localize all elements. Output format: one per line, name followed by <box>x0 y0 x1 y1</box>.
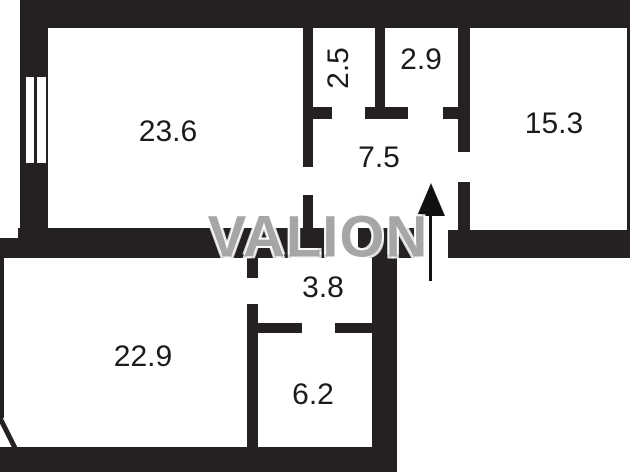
room-area-label-7-5: 7.5 <box>358 143 400 173</box>
wall-closet-bath-divider <box>375 28 385 119</box>
wall-closet-bottom-stub <box>313 107 332 119</box>
wall-room4-bottom <box>448 230 630 258</box>
wall-divider-foot <box>365 107 408 119</box>
window-pane-right <box>37 77 46 163</box>
wall-room4-left-upper <box>458 28 470 152</box>
room-area-label-23-6: 23.6 <box>139 117 197 147</box>
room-area-label-22-9: 22.9 <box>114 342 172 372</box>
room-area-label-3-8: 3.8 <box>302 273 344 303</box>
wall-chamfer-diagonal <box>0 414 22 452</box>
watermark-text: VALION <box>208 204 429 271</box>
wall-bath-bottom-stub <box>443 107 458 119</box>
wall-left-lower-sliver <box>0 258 4 418</box>
wall-room6-bottom-right <box>335 323 372 333</box>
window-pane-left <box>26 77 34 163</box>
room-area-label-15-3: 15.3 <box>525 109 583 139</box>
floor-plan: 23.6 2.5 2.9 15.3 7.5 3.8 22.9 6.2 VALIO… <box>0 0 630 475</box>
room-area-label-2-5: 2.5 <box>324 47 354 89</box>
wall-room8-right <box>372 258 397 472</box>
wall-top <box>20 0 630 28</box>
room-area-label-6-2: 6.2 <box>292 380 334 410</box>
arrow-shaft <box>429 212 432 281</box>
wall-bottom <box>0 447 397 472</box>
wall-room1-right-upper <box>303 28 313 167</box>
room-area-label-2-9: 2.9 <box>400 45 442 75</box>
wall-room6-bottom-left <box>247 323 302 333</box>
